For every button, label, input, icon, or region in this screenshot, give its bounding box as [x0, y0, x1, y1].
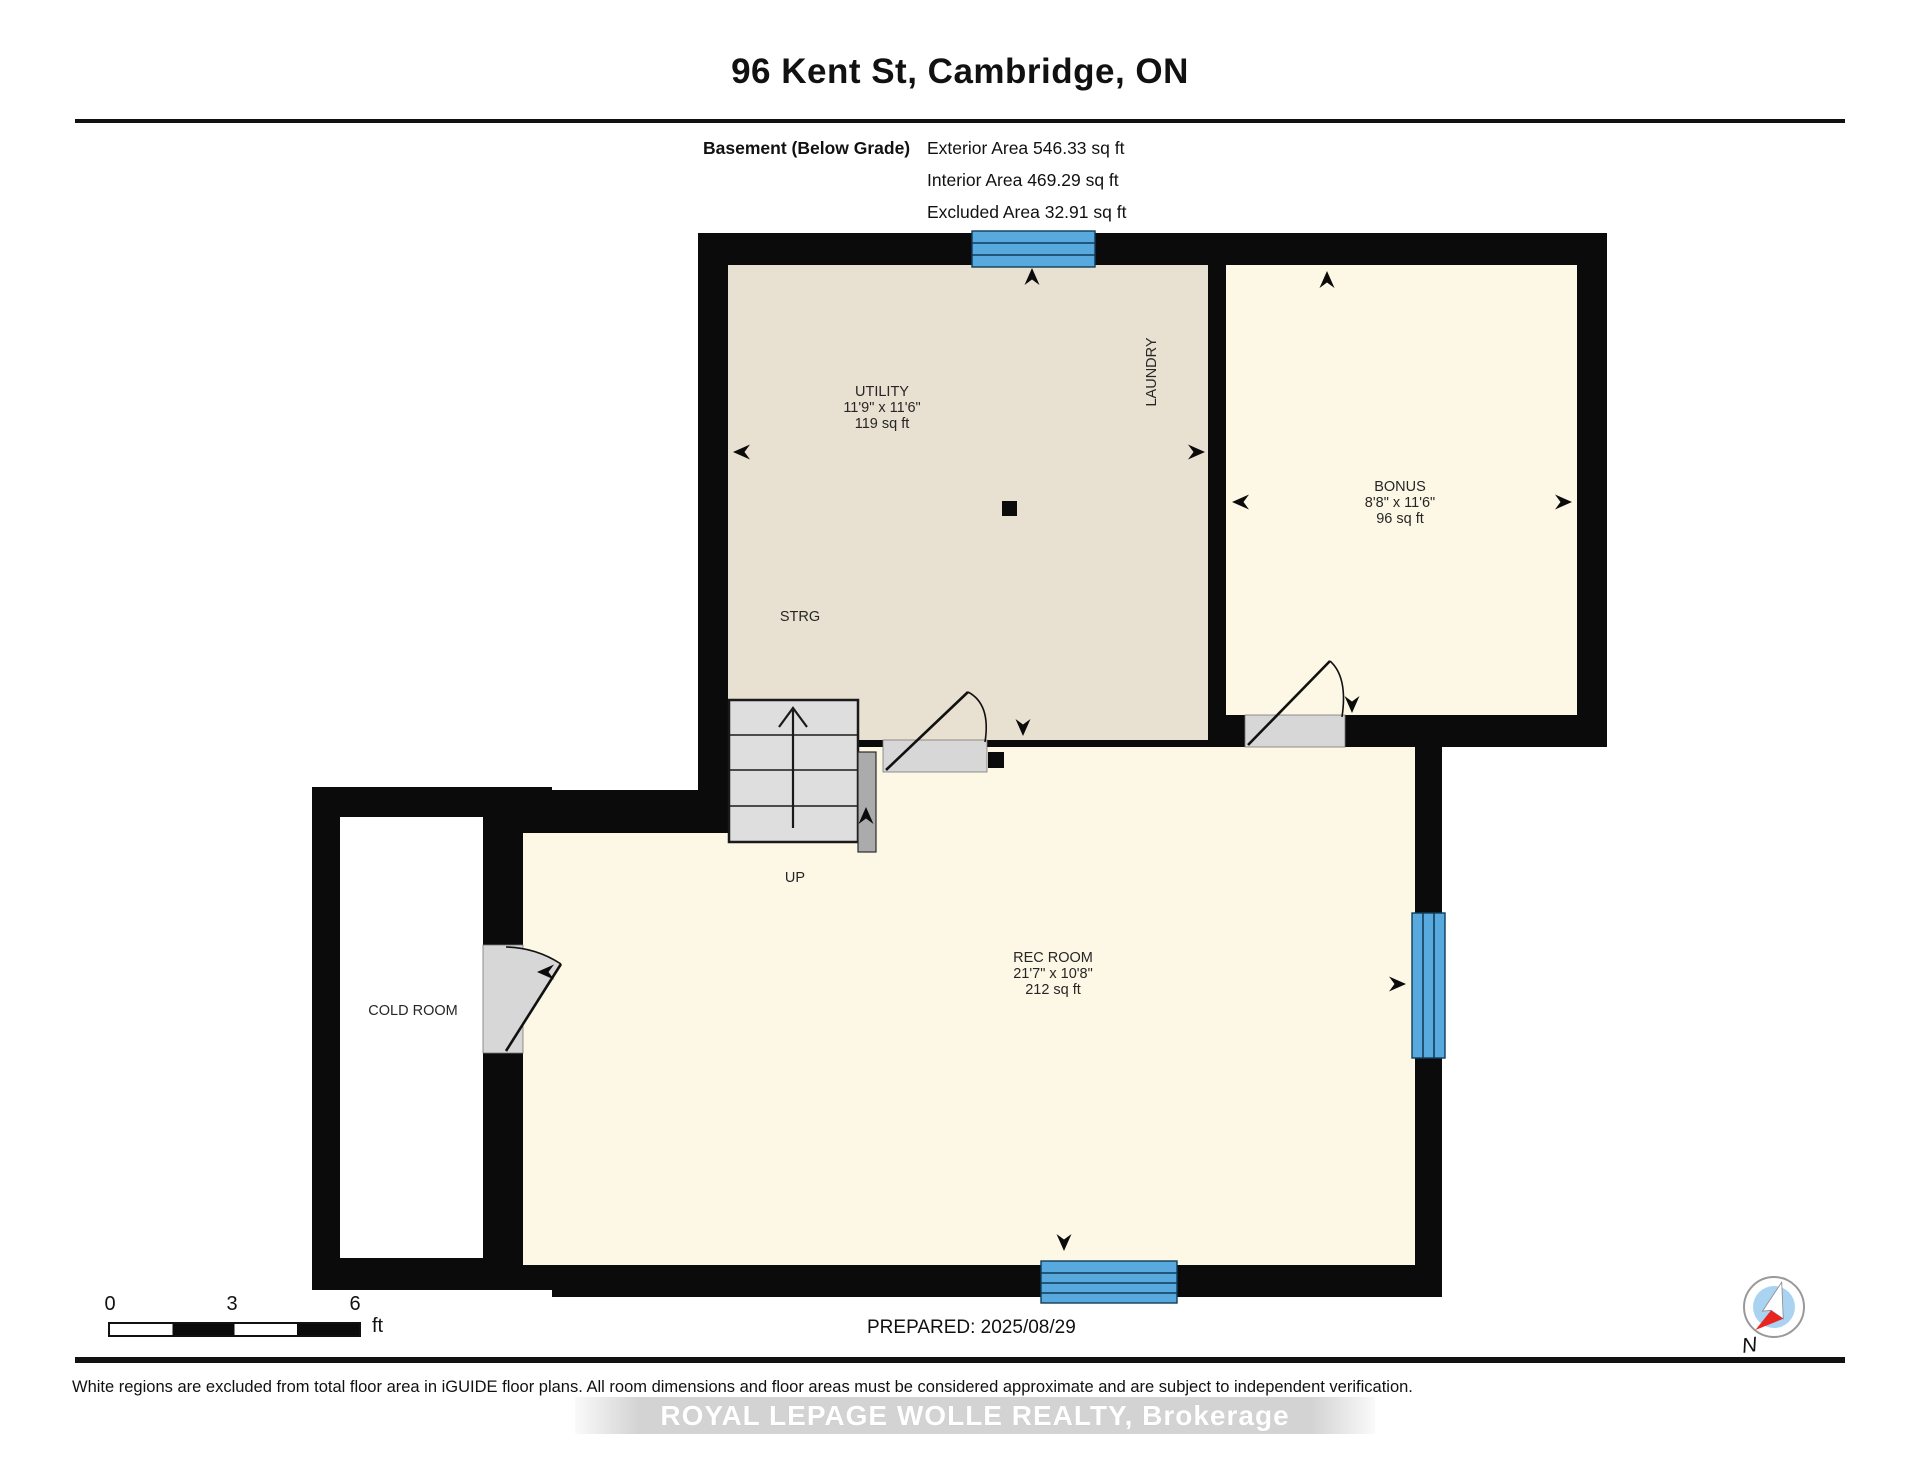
measure-arrow-down: [1016, 719, 1031, 736]
disclaimer-text: White regions are excluded from total fl…: [72, 1378, 1413, 1397]
window-bottom: [1041, 1261, 1177, 1303]
scale-unit-label: ft: [372, 1315, 383, 1338]
measure-arrow-down: [1345, 696, 1360, 713]
measure-arrow-left: [1232, 495, 1249, 510]
brokerage-watermark: ROYAL LEPAGE WOLLE REALTY, Brokerage: [575, 1397, 1375, 1434]
window-right: [1412, 913, 1445, 1058]
room-dims: 11'9" x 11'6": [843, 400, 920, 416]
compass-icon: [1744, 1277, 1804, 1337]
door-jamb-nub: [988, 752, 1004, 768]
measure-arrow-left: [733, 445, 750, 460]
prepared-date: PREPARED: 2025/08/29: [867, 1317, 1076, 1339]
room-dims: 8'8" x 11'6": [1365, 495, 1435, 511]
measure-arrow-down: [1057, 1234, 1072, 1251]
cold-room-label: COLD ROOM: [368, 1003, 457, 1019]
scale-tick-3: 3: [217, 1293, 247, 1316]
stairs-railing: [858, 752, 876, 852]
measure-arrow-right: [1555, 495, 1572, 510]
measure-arrow-up: [1320, 271, 1335, 288]
window-top: [972, 231, 1095, 267]
scale-tick-0: 0: [95, 1293, 125, 1316]
bonus-room-label: BONUS 8'8" x 11'6" 96 sq ft: [1365, 479, 1435, 527]
utility-room-label: UTILITY 11'9" x 11'6" 119 sq ft: [843, 384, 920, 432]
floor-plan-page: 96 Kent St, Cambridge, ON Basement (Belo…: [0, 0, 1920, 1484]
plan-graphics: [0, 0, 1920, 1484]
storage-label: STRG: [780, 609, 820, 625]
scale-bar: [108, 1322, 361, 1337]
cold-room-door: [483, 945, 561, 1053]
measurement-arrows: [537, 268, 1572, 1251]
measure-arrow-up: [1025, 268, 1040, 285]
room-dims: 21'7" x 10'8": [1013, 966, 1093, 982]
support-post: [1002, 501, 1017, 516]
staircase: [729, 700, 876, 852]
measure-arrow-right: [1389, 977, 1406, 992]
room-name: UTILITY: [843, 384, 920, 400]
room-area: 96 sq ft: [1365, 511, 1435, 527]
bonus-door: [1245, 661, 1345, 747]
measure-arrow-right: [1188, 445, 1205, 460]
utility-door: [883, 692, 987, 772]
room-area: 119 sq ft: [843, 416, 920, 432]
compass-north-label: N: [1740, 1333, 1758, 1359]
room-area: 212 sq ft: [1013, 982, 1093, 998]
rec-room-label: REC ROOM 21'7" x 10'8" 212 sq ft: [1013, 950, 1093, 998]
room-name: BONUS: [1365, 479, 1435, 495]
laundry-label: LAUNDRY: [1144, 337, 1160, 406]
footer-divider: [75, 1357, 1845, 1363]
stairs-up-label: UP: [785, 870, 805, 886]
room-name: REC ROOM: [1013, 950, 1093, 966]
scale-tick-6: 6: [340, 1293, 370, 1316]
